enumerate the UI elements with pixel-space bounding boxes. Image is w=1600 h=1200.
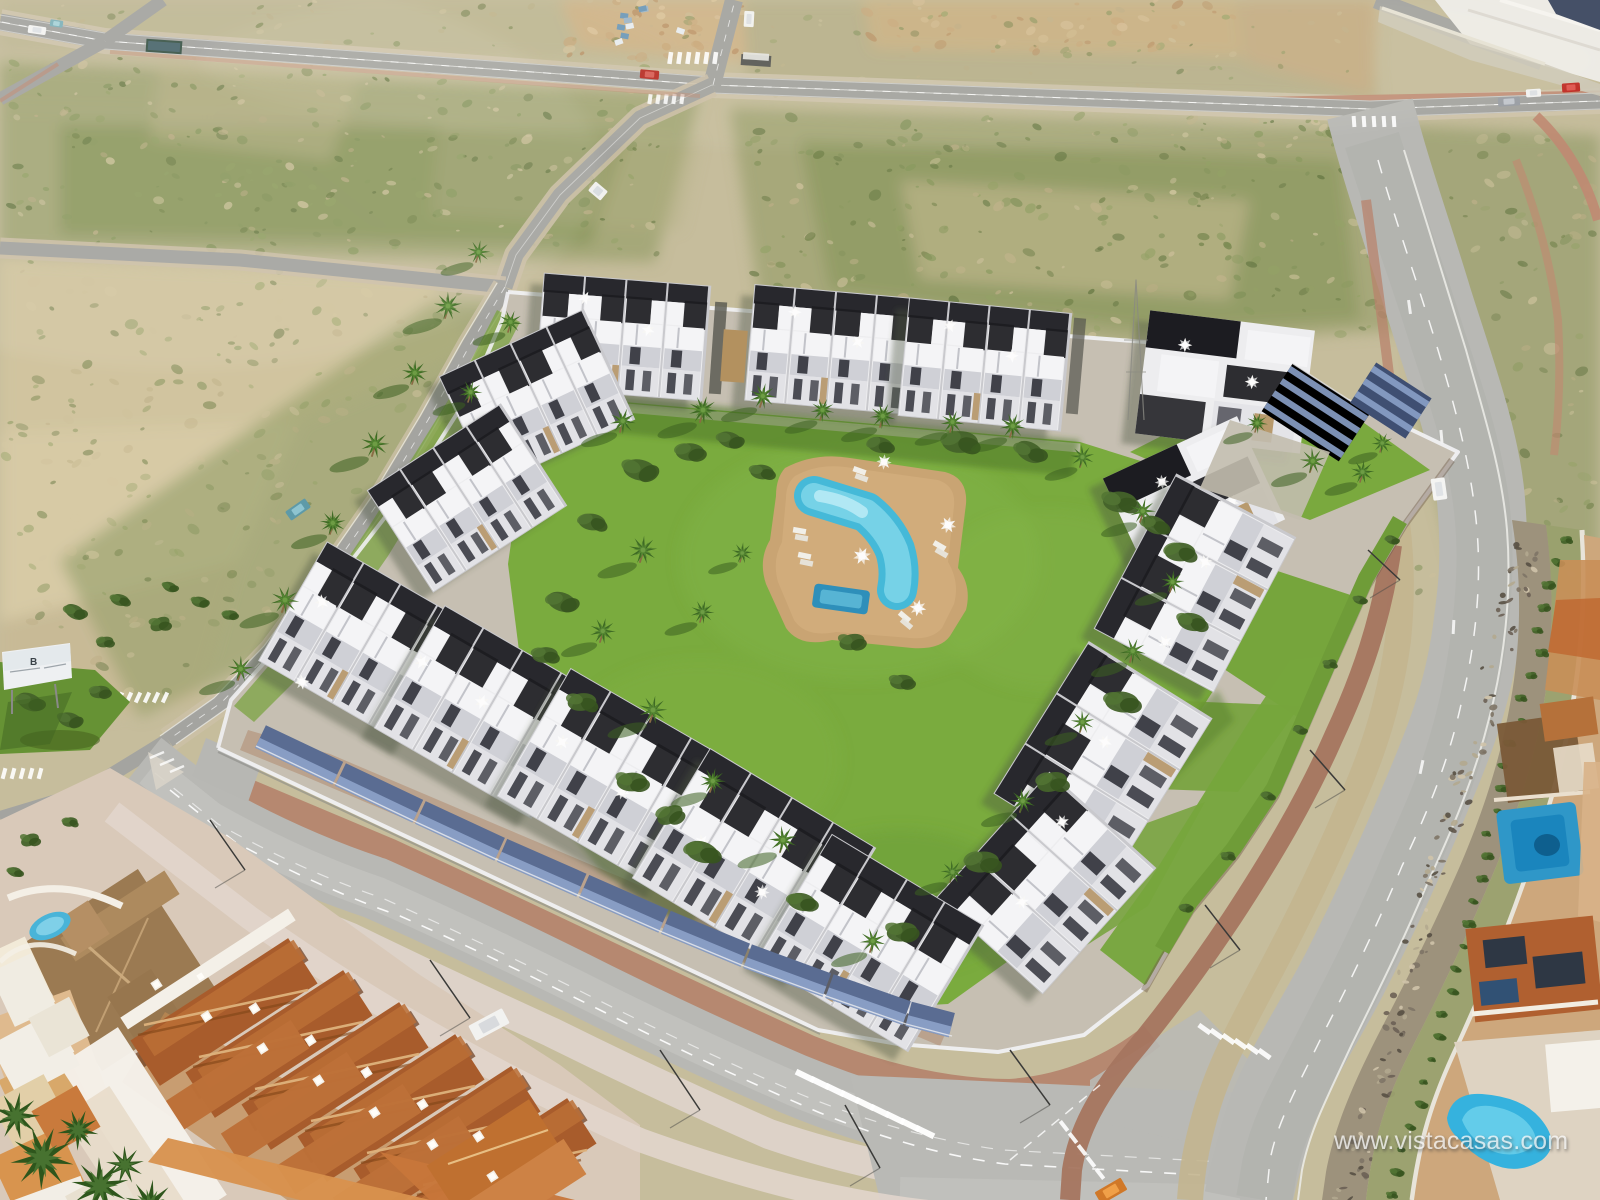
svg-text:www.vistacasas.com: www.vistacasas.com: [1333, 1127, 1568, 1155]
svg-text:B: B: [30, 657, 37, 668]
